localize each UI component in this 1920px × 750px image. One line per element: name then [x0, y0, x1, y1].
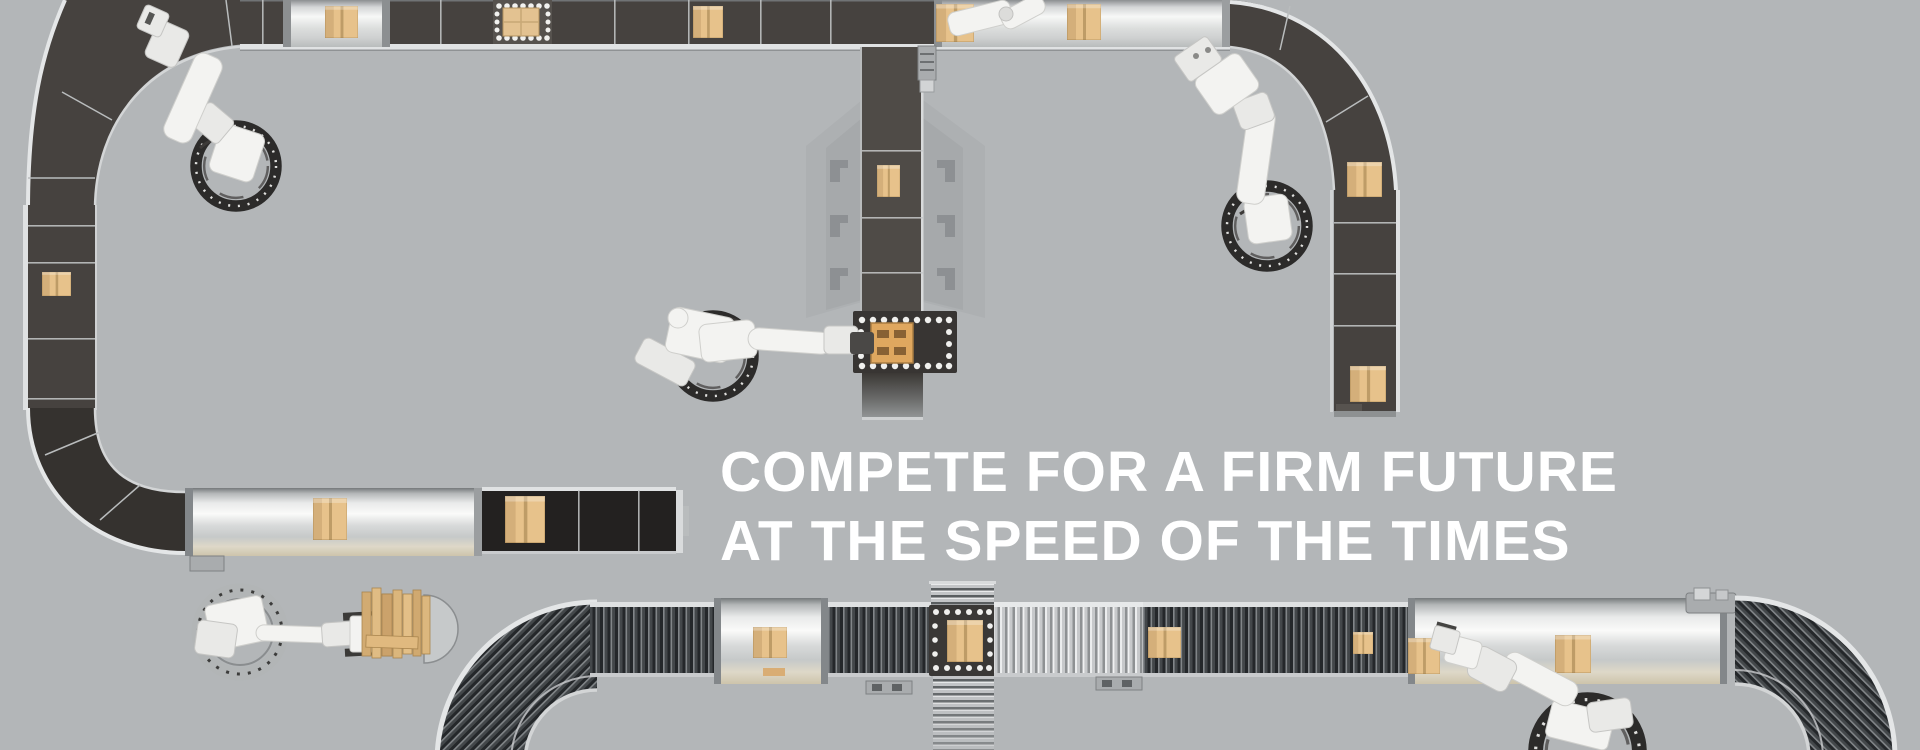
cargo-box	[947, 620, 983, 662]
cargo-box	[325, 6, 358, 38]
conveyor-bracket	[190, 556, 224, 571]
cargo-box	[1067, 4, 1101, 40]
cargo-box	[505, 496, 545, 543]
station-pallet	[871, 323, 913, 363]
cargo-box	[313, 498, 347, 540]
cargo-box	[1350, 366, 1386, 402]
crossing-station	[929, 581, 996, 750]
headline-line2: AT THE SPEED OF THE TIMES	[720, 507, 1618, 576]
cargo-box	[1555, 635, 1591, 673]
chute-panel-right	[923, 118, 963, 310]
headline-line1: COMPETE FOR A FIRM FUTURE	[720, 438, 1618, 507]
cargo-box	[1148, 627, 1181, 658]
cargo-box	[1347, 162, 1382, 197]
chute-belt-lower	[862, 373, 923, 420]
cargo-box	[1353, 632, 1373, 654]
cargo-box	[753, 627, 787, 658]
hero-banner: COMPETE FOR A FIRM FUTURE AT THE SPEED O…	[0, 0, 1920, 750]
headline: COMPETE FOR A FIRM FUTURE AT THE SPEED O…	[720, 438, 1618, 576]
cargo-box	[42, 272, 71, 296]
lumber-stack	[362, 588, 430, 658]
cargo-box	[693, 6, 723, 38]
scene-svg	[0, 0, 1920, 750]
roller-transfer-segment	[493, 0, 552, 44]
cargo-box	[877, 165, 900, 197]
conveyor-left-band	[28, 205, 95, 410]
